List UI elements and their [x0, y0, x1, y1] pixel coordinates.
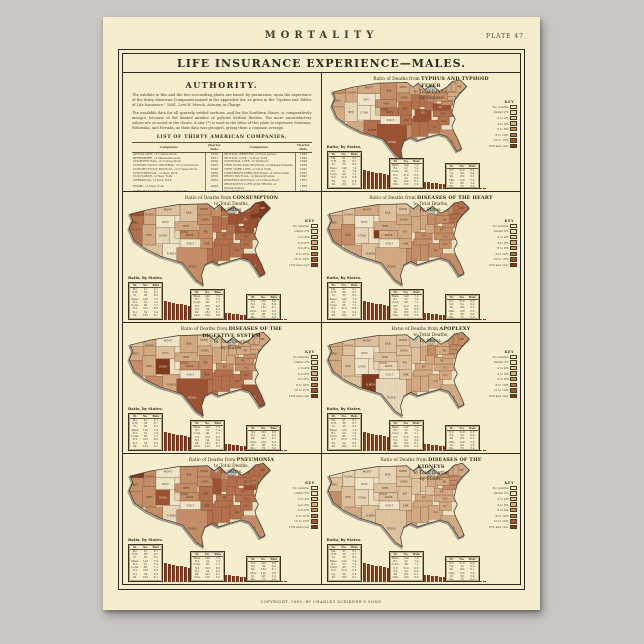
map-key-label: 2 to 4%	[298, 497, 309, 501]
map-key-label: 2 to 4%	[497, 497, 508, 501]
ratio-table-box: St.No.RateMe.419.1N.H.388.7Vt.368.2Mass.…	[128, 282, 163, 320]
map-title-prefix: Ratio of Deaths from	[392, 327, 440, 332]
map-key-row: 15% and over	[481, 262, 517, 268]
page-title: MORTALITY	[103, 30, 540, 41]
ratio-table-row: Mo.725.0	[447, 578, 478, 581]
map-key-label: 10 to 15%	[294, 257, 309, 261]
ratio-table-box: St.No.RateN.Y.3106.8N.J.546.4Pa.1826.1Oh…	[445, 556, 480, 582]
map-key-swatch	[311, 224, 318, 228]
map-key-swatch	[510, 502, 517, 506]
ratio-table-header-cell: No.	[258, 558, 268, 561]
svg-text:TEXAS: TEXAS	[387, 141, 396, 144]
map-key-row: 15% and over	[282, 393, 318, 399]
ratio-table-header-cell: Rate	[349, 153, 359, 156]
ratio-table-cell: 182	[339, 183, 349, 186]
ratio-bar	[184, 567, 187, 582]
ratio-table-row: Mo.725.0	[447, 185, 478, 188]
map-title-prefix: Ratio of Deaths from	[369, 196, 417, 201]
ratio-bar	[439, 315, 442, 320]
ratio-by-states-label: Ratio, by States.	[327, 406, 362, 411]
map-key-row: 15% and over	[282, 262, 318, 268]
svg-text:ARK: ARK	[203, 241, 210, 245]
ratio-table-row: Pa.1826.1	[329, 445, 360, 448]
ratio-table-header-cell: No.	[140, 415, 150, 418]
map-key-swatch	[311, 355, 318, 359]
ratio-bar	[371, 172, 374, 189]
ratio-table-header-cell: St.	[248, 558, 258, 561]
ratio-bar	[483, 450, 486, 451]
map-key-label: 4 to 6%	[497, 241, 508, 245]
map-key-swatch	[510, 121, 517, 125]
ratio-table-header-cell: Rate	[467, 296, 477, 299]
svg-text:UTAH: UTAH	[159, 234, 168, 238]
ratio-bar	[240, 577, 243, 582]
ratio-table-cell: 5.0	[467, 316, 477, 319]
ratio-bar	[435, 183, 438, 189]
ratio-table-cell: 5.8	[213, 445, 223, 448]
svg-text:TEXAS: TEXAS	[386, 527, 395, 531]
map-title-line-1: Ratio of Deaths from APOPLEXY	[368, 326, 494, 333]
ratio-table-row: Pa.1826.1	[329, 314, 360, 317]
ratio-table-cell: 6.1	[349, 314, 359, 317]
map-key-row: 15% and over	[481, 143, 517, 149]
svg-text:IDAHO: IDAHO	[344, 344, 353, 348]
ratio-bar	[371, 565, 374, 582]
map-key-swatch	[510, 235, 517, 239]
atlas-poster: MORTALITY PLATE 47 LIFE INSURANCE EXPERI…	[103, 17, 540, 610]
svg-text:KANS: KANS	[384, 364, 392, 368]
svg-text:N.C: N.C	[244, 234, 249, 238]
svg-text:KANS: KANS	[186, 495, 194, 499]
ratio-table-header-cell: Rate	[269, 427, 279, 430]
ratio-table-box: St.No.RateMe.419.1N.H.388.7Vt.368.2Mass.…	[327, 282, 362, 320]
map-key-label: 8 to 10%	[495, 252, 508, 256]
map-key-label: No returns	[293, 224, 309, 228]
svg-text:PA: PA	[244, 480, 247, 484]
ratio-table-header-cell: No.	[339, 153, 349, 156]
svg-text:WYO: WYO	[361, 351, 367, 355]
ratio-bar	[232, 576, 235, 582]
ratio-bar	[371, 434, 374, 451]
map-key: KEYNo returnsUnder 2%2 to 4%4 to 6%6 to …	[481, 481, 517, 530]
map-key-label: 10 to 15%	[494, 519, 509, 523]
ratio-table-header-cell: No.	[202, 553, 212, 556]
ratio-table-box: St.No.RateMass.1407.9R.I.227.4Conn.967.1…	[389, 289, 424, 320]
svg-text:KY: KY	[223, 365, 227, 369]
map-key-label: 8 to 10%	[495, 383, 508, 387]
ratio-bar	[379, 435, 382, 451]
svg-text:S.C: S.C	[443, 373, 447, 377]
map-key-row: 15% and over	[282, 524, 318, 530]
map-panel-title: Ratio of Deaths from APOPLEXYto Total De…	[368, 326, 494, 345]
map-key-swatch	[510, 377, 517, 381]
map-key-swatch	[510, 383, 517, 387]
ratio-bar	[383, 436, 386, 451]
ratio-bar	[439, 184, 442, 189]
svg-text:UTAH: UTAH	[357, 496, 366, 500]
ratio-table-box: St.No.RateMe.419.1N.H.388.7Vt.368.2Mass.…	[327, 413, 362, 451]
ratio-legend-strip: Ratio, by States.St.No.RateMe.419.1N.H.3…	[128, 546, 291, 582]
ratio-table-header-cell: St.	[192, 291, 202, 294]
map-key-swatch	[510, 486, 517, 490]
ratio-table-cell: 120	[202, 445, 212, 448]
svg-text:MO: MO	[203, 229, 208, 233]
ratio-bar	[427, 575, 430, 582]
svg-text:TEXAS: TEXAS	[386, 265, 395, 269]
map-title-line-1: Ratio of Deaths from DISEASES OF THE KID…	[368, 457, 494, 471]
svg-text:GA: GA	[433, 510, 437, 514]
map-key-swatch	[510, 110, 517, 114]
svg-text:IDAHO: IDAHO	[347, 92, 356, 95]
map-key-swatch	[510, 388, 517, 392]
ratio-bar	[168, 564, 171, 582]
ratio-bar	[375, 435, 378, 451]
ratio-bar	[427, 313, 430, 320]
map-key-label: No returns	[492, 224, 508, 228]
ratio-table-row: Ohio1205.8	[391, 314, 422, 317]
ratio-bar	[164, 301, 167, 320]
map-key-swatch	[510, 116, 517, 120]
map-key-swatch	[510, 519, 517, 523]
ratio-bar	[435, 314, 438, 320]
map-key-label: Under 2%	[294, 229, 309, 233]
svg-text:N.C: N.C	[244, 365, 249, 369]
ratio-table-cell: 182	[339, 576, 349, 579]
ratio-table-cell: 182	[140, 445, 150, 448]
ratio-table-cell: 72	[457, 447, 467, 450]
ratio-bar	[180, 435, 183, 451]
ratio-table-header-cell: Rate	[269, 558, 279, 561]
ratio-table-header-cell: St.	[329, 415, 339, 418]
authority-panel: AUTHORITY. The exhibits in this and the …	[123, 73, 322, 192]
svg-text:IND.T: IND.T	[385, 241, 393, 245]
map-key: KEYNo returnsUnder 2%2 to 4%4 to 6%6 to …	[282, 350, 318, 399]
ratio-bar	[168, 302, 171, 320]
map-key-label: 8 to 10%	[495, 514, 508, 518]
map-key-label: 6 to 8%	[497, 127, 508, 131]
map-panel-pneumonia: Ratio of Deaths from PNEUMONIAto Total D…	[123, 454, 322, 584]
map-key-swatch	[510, 240, 517, 244]
map-key-label: 15% and over	[289, 394, 309, 398]
ratio-table-cell: 6.1	[151, 314, 161, 317]
ratio-table-header-cell: Rate	[151, 284, 161, 287]
ratio-table-cell: 72	[457, 578, 467, 581]
map-key-swatch	[311, 377, 318, 381]
svg-text:GA: GA	[432, 126, 436, 129]
ratio-table-header-cell: No.	[401, 553, 411, 556]
svg-text:NEV: NEV	[146, 233, 152, 237]
map-key-label: No returns	[492, 355, 508, 359]
ratio-bar	[180, 304, 183, 320]
ratio-table-cell: 182	[140, 314, 150, 317]
ratio-table-header-cell: St.	[447, 558, 457, 561]
ratio-bar	[483, 188, 486, 189]
ratio-bar	[379, 566, 382, 582]
svg-text:UTAH: UTAH	[357, 365, 366, 369]
map-key-label: 8 to 10%	[296, 514, 309, 518]
svg-text:GA: GA	[235, 510, 239, 514]
ratio-table-cell: 5.0	[269, 578, 279, 581]
ratio-bar	[483, 581, 486, 582]
ratio-table-cell: Mo.	[248, 447, 258, 450]
map-key-swatch	[510, 257, 517, 261]
ratio-legend-strip: Ratio, by States.St.No.RateMe.419.1N.H.3…	[327, 284, 491, 320]
map-key-swatch	[311, 519, 318, 523]
svg-text:NEV: NEV	[345, 364, 351, 368]
ratio-table-box: St.No.RateN.Y.3106.8N.J.546.4Pa.1826.1Oh…	[246, 425, 281, 451]
map-title-prefix: Ratio of Deaths from	[380, 458, 428, 463]
ratio-by-states-label: Ratio, by States.	[327, 144, 362, 149]
map-key-swatch	[510, 371, 517, 375]
company-table-header: Charter Date	[295, 143, 312, 153]
ratio-table-box: St.No.RateN.Y.3106.8N.J.546.4Pa.1826.1Oh…	[445, 294, 480, 320]
map-key-swatch	[510, 360, 517, 364]
map-key-label: No returns	[492, 486, 508, 490]
map-title-line-1: Ratio of Deaths from TYPHUS AND TYPHOID …	[368, 76, 494, 90]
map-key-swatch	[510, 246, 517, 250]
ratio-table-box: St.No.RateMass.1407.9R.I.227.4Conn.967.1…	[389, 551, 424, 582]
ratio-table-cell: 5.8	[213, 314, 223, 317]
map-title-line-3: by States.	[169, 346, 295, 352]
ratio-table-header-cell: St.	[391, 553, 401, 556]
ratio-table-cell: 5.0	[269, 447, 279, 450]
ratio-table-box: St.No.RateN.Y.3106.8N.J.546.4Pa.1826.1Oh…	[246, 556, 281, 582]
svg-text:IOWA: IOWA	[400, 218, 408, 222]
ratio-table-box: St.No.RateN.Y.3106.8N.J.546.4Pa.1826.1Oh…	[445, 425, 480, 451]
ratio-table-header-cell: Rate	[349, 415, 359, 418]
map-key-label: 6 to 8%	[298, 377, 309, 381]
ratio-table-cell: Mo.	[248, 316, 258, 319]
ratio-table-cell: Mo.	[447, 447, 457, 450]
map-key-label: 2 to 4%	[497, 116, 508, 120]
map-title-line-3: by States.	[368, 208, 494, 214]
map-panel-heart: Ratio of Deaths from DISEASES OF THE HEA…	[322, 192, 521, 323]
map-panel-title: Ratio of Deaths from DISEASES OF THE HEA…	[368, 195, 494, 214]
ratio-bar	[379, 304, 382, 320]
map-key-label: Under 2%	[294, 491, 309, 495]
ratio-bar	[367, 433, 370, 451]
svg-text:KANS: KANS	[186, 364, 194, 368]
map-key-label: 6 to 8%	[497, 508, 508, 512]
ratio-table-cell: 5.0	[269, 316, 279, 319]
ratio-table-header-cell: No.	[258, 427, 268, 430]
ratio-by-states-label: Ratio, by States.	[128, 406, 163, 411]
svg-text:ARK: ARK	[203, 503, 210, 507]
svg-text:KY: KY	[421, 234, 425, 238]
map-key-swatch	[311, 246, 318, 250]
ratio-bar	[172, 434, 175, 451]
ratio-table-cell: 5.8	[411, 183, 421, 186]
map-key-label: 10 to 15%	[294, 519, 309, 523]
ratio-table-header-cell: St.	[130, 284, 140, 287]
ratio-table-row: Mo.725.0	[447, 447, 478, 450]
ratio-table-cell: 6.1	[151, 445, 161, 448]
svg-text:NEV: NEV	[146, 364, 152, 368]
ratio-table-cell: 72	[457, 316, 467, 319]
ratio-table-cell: 120	[202, 314, 212, 317]
svg-text:MO: MO	[402, 108, 407, 111]
ratio-table-header-cell: St.	[329, 546, 339, 549]
svg-text:PA: PA	[442, 218, 445, 222]
map-panel-title: Ratio of Deaths from PNEUMONIAto Total D…	[169, 457, 295, 476]
ratio-bar	[176, 435, 179, 451]
map-key-swatch	[510, 355, 517, 359]
svg-text:PA: PA	[442, 349, 445, 353]
svg-text:S.C: S.C	[244, 504, 248, 508]
svg-text:MO: MO	[203, 491, 208, 495]
map-key-swatch	[311, 525, 318, 529]
ratio-table-header-cell: St.	[192, 553, 202, 556]
ratio-table-row: Pa.1826.1	[130, 445, 161, 448]
map-key-label: 4 to 6%	[497, 372, 508, 376]
map-key-swatch	[510, 138, 517, 142]
svg-text:UTAH: UTAH	[159, 496, 168, 500]
ratio-table-row: Mo.725.0	[248, 578, 279, 581]
map-key-label: 10 to 15%	[494, 138, 509, 142]
map-key-label: 6 to 8%	[298, 246, 309, 250]
svg-text:KANS: KANS	[384, 233, 392, 237]
svg-text:GA: GA	[433, 379, 437, 383]
map-title-line-1: Ratio of Deaths from DISEASES OF THE HEA…	[368, 195, 494, 202]
svg-text:WYO: WYO	[361, 482, 367, 486]
ratio-table-header-cell: No.	[339, 546, 349, 549]
ratio-table-header-cell: St.	[248, 427, 258, 430]
photo-background: MORTALITY PLATE 47 LIFE INSURANCE EXPERI…	[0, 0, 644, 644]
ratio-table-cell: 6.1	[151, 576, 161, 579]
map-key-swatch	[510, 497, 517, 501]
map-key-swatch	[311, 486, 318, 490]
ratio-table-cell: Mo.	[447, 185, 457, 188]
svg-text:N.MEX: N.MEX	[365, 383, 374, 387]
ratio-table-cell: Pa.	[329, 576, 339, 579]
map-key-label: Under 2%	[494, 110, 509, 114]
svg-text:NEB: NEB	[383, 103, 389, 106]
plate-number: PLATE 47	[486, 33, 524, 40]
ratio-by-states-label: Ratio, by States.	[128, 275, 163, 280]
map-key-swatch	[311, 388, 318, 392]
map-key-label: 2 to 4%	[298, 366, 309, 370]
svg-text:UTAH: UTAH	[159, 365, 168, 369]
svg-text:VA: VA	[437, 106, 442, 109]
ratio-table-header-cell: No.	[140, 284, 150, 287]
map-panel-title: Ratio of Deaths from CONSUMPTIONto Total…	[169, 195, 295, 214]
map-key-label: No returns	[293, 355, 309, 359]
map-key-swatch	[510, 105, 517, 109]
ratio-table-header-cell: No.	[140, 546, 150, 549]
svg-text:KY: KY	[223, 496, 227, 500]
ratio-table-cell: 5.8	[411, 576, 421, 579]
map-key: KEYNo returnsUnder 2%2 to 4%4 to 6%6 to …	[481, 100, 517, 149]
svg-text:IDAHO: IDAHO	[145, 475, 154, 479]
ratio-bar	[379, 173, 382, 189]
map-key-row: 15% and over	[481, 393, 517, 399]
svg-text:KANS: KANS	[186, 233, 194, 237]
map-key-swatch	[510, 224, 517, 228]
company-table-header: Charter Date	[206, 143, 223, 153]
map-title-prefix: Ratio of Deaths from	[373, 77, 421, 82]
ratio-table-cell: 120	[401, 314, 411, 317]
ratio-bar	[168, 433, 171, 451]
map-key-label: 2 to 4%	[298, 235, 309, 239]
ratio-table-cell: 5.8	[213, 576, 223, 579]
ratio-table-header-cell: Rate	[411, 160, 421, 163]
svg-text:VA: VA	[240, 359, 245, 363]
ratio-bar	[363, 432, 366, 451]
ratio-table-box: St.No.RateMass.1407.9R.I.227.4Conn.967.1…	[190, 289, 225, 320]
svg-text:NEB: NEB	[382, 355, 388, 359]
svg-text:N.C: N.C	[441, 112, 446, 115]
map-title-disease: DISEASES OF THE HEART	[417, 195, 493, 201]
ratio-table-cell: Ohio	[192, 576, 202, 579]
authority-heading: AUTHORITY.	[132, 80, 312, 90]
map-key-row: 15% and over	[481, 524, 517, 530]
ratio-table-box: St.No.RateMass.1407.9R.I.227.4Conn.967.1…	[190, 551, 225, 582]
ratio-table-row: Ohio1205.8	[391, 576, 422, 579]
ratio-table-header-cell: St.	[447, 296, 457, 299]
ratio-bar	[176, 304, 179, 320]
ratio-table-cell: 6.1	[349, 183, 359, 186]
ratio-table-row: Mo.725.0	[248, 447, 279, 450]
map-key-label: 4 to 6%	[298, 372, 309, 376]
ratio-table-cell: Pa.	[130, 314, 140, 317]
ratio-table-header-cell: No.	[401, 160, 411, 163]
ratio-table-header-cell: Rate	[151, 415, 161, 418]
ratio-bar	[431, 576, 434, 582]
map-key-swatch	[311, 371, 318, 375]
ratio-table-cell: Pa.	[329, 183, 339, 186]
ratio-table-box: St.No.RateMass.1407.9R.I.227.4Conn.967.1…	[389, 158, 424, 189]
map-key: KEYNo returnsUnder 2%2 to 4%4 to 6%6 to …	[481, 219, 517, 268]
ratio-legend-strip: Ratio, by States.St.No.RateMe.419.1N.H.3…	[128, 284, 291, 320]
map-key-label: No returns	[293, 486, 309, 490]
ratio-bar	[236, 576, 239, 582]
svg-text:IND.T: IND.T	[186, 241, 194, 245]
ratio-table-cell: Mo.	[447, 578, 457, 581]
svg-text:ARK: ARK	[402, 119, 409, 122]
svg-text:IOWA: IOWA	[201, 480, 209, 484]
plate-banner-title: LIFE INSURANCE EXPERIENCE—MALES.	[122, 53, 521, 73]
svg-text:N.C: N.C	[244, 496, 249, 500]
ratio-table-header-cell: No.	[457, 427, 467, 430]
map-key-swatch	[311, 514, 318, 518]
ratio-bar	[363, 301, 366, 320]
map-title-line-3: by States.	[169, 208, 295, 214]
ratio-table-cell: 5.0	[467, 185, 477, 188]
ratio-by-states-label: Ratio, by States.	[327, 275, 362, 280]
authority-paragraph-2: The available data for all sparsely sett…	[132, 111, 312, 132]
svg-text:N.MEX: N.MEX	[167, 514, 176, 518]
ratio-bar	[228, 575, 231, 582]
ratio-table-cell: Pa.	[130, 445, 140, 448]
ratio-table-row: Pa.1826.1	[130, 576, 161, 579]
ratio-table-cell: 120	[401, 576, 411, 579]
svg-text:N.MEX: N.MEX	[365, 514, 374, 518]
ratio-table-cell: Pa.	[329, 314, 339, 317]
ratio-bar	[363, 563, 366, 582]
map-panel-digestive: Ratio of Deaths from DISEASES OF THE DIG…	[123, 323, 322, 454]
svg-text:N.MEX: N.MEX	[367, 129, 376, 132]
map-key-swatch	[311, 257, 318, 261]
map-title-disease: APOPLEXY	[439, 326, 470, 332]
ratio-table-box: St.No.RateN.Y.3106.8N.J.546.4Pa.1826.1Oh…	[445, 163, 480, 189]
svg-text:VA: VA	[240, 228, 245, 232]
ratio-table-row: Pa.1826.1	[329, 576, 360, 579]
ratio-table-box: St.No.RateMass.1407.9R.I.227.4Conn.967.1…	[389, 420, 424, 451]
svg-text:N.MEX: N.MEX	[167, 383, 176, 387]
ratio-legend-strip: Ratio, by States.St.No.RateMe.419.1N.H.3…	[327, 546, 491, 582]
map-panel-typhoid: Ratio of Deaths from TYPHUS AND TYPHOID …	[322, 73, 521, 192]
map-title-prefix: Ratio of Deaths from	[181, 327, 229, 332]
